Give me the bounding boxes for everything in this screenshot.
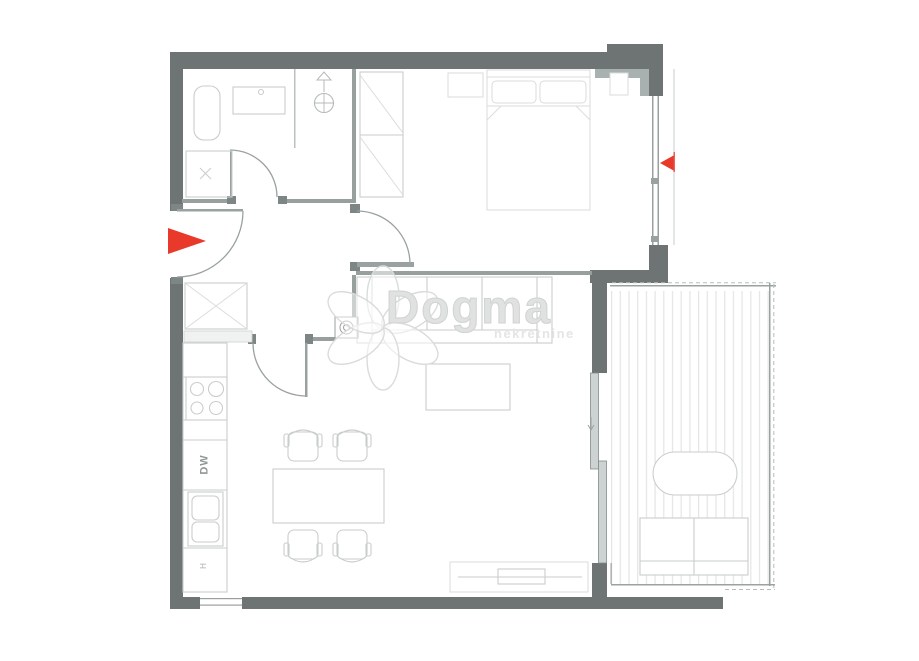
markers (168, 152, 675, 254)
sliding-door-panel-upper (591, 373, 599, 469)
balcony-oval-table (653, 452, 737, 495)
watermark-tagline-text: nekretnine (494, 327, 575, 340)
dining-area (273, 430, 384, 562)
sliding-door (588, 373, 607, 563)
bedroom-window-pane-outer (658, 96, 660, 245)
sliding-door-panel-lower (599, 461, 607, 563)
window-marker-arrow (660, 156, 674, 171)
left-wall-upper (170, 52, 183, 211)
sink-basin-upper (192, 496, 219, 520)
door-jambs (171, 196, 360, 344)
living-right-wall-upper (592, 272, 607, 373)
kitchen-door-swing-arc (253, 343, 306, 396)
washing-machine (186, 151, 232, 197)
chair-back (288, 430, 318, 436)
entrance-arrow (168, 228, 206, 254)
appliance-label: H (200, 556, 208, 576)
bedroom-window-sash-mark-upper (651, 178, 659, 184)
hall-counter-strip (184, 331, 252, 342)
chair-seat (337, 432, 367, 461)
bedroom-window-sash-mark-lower (651, 236, 659, 242)
right-wall-inner-face (640, 78, 649, 96)
bathroom-door-jamb-right (278, 196, 287, 204)
stove-burner (209, 382, 224, 397)
dining-chair-top-left (284, 430, 322, 461)
watermark-brand-text: Dogma (386, 284, 552, 330)
balcony-left-floor-edge (611, 563, 612, 584)
vanity-faucet (259, 90, 264, 95)
kitchen-door-jamb-right (305, 334, 313, 344)
hall-closet-diagonals (185, 283, 247, 329)
stove-burner (191, 402, 203, 414)
shower-partition (294, 69, 296, 148)
right-wall-upper (649, 44, 663, 96)
balcony-rail-bottom (611, 584, 775, 586)
nightstand-left (448, 73, 483, 97)
apartment-floor-plan: DW H Dogma nekretnine (0, 0, 919, 661)
stove-burner (191, 383, 204, 396)
shower-pipe (317, 72, 331, 92)
nightstand-right (610, 73, 628, 95)
dining-table (273, 469, 384, 523)
dining-chair-bottom-left (284, 530, 322, 562)
entrance-jamb-bottom (171, 277, 183, 284)
kitchen-low-window-line-bottom (200, 605, 242, 606)
kitchen-low-window-line-top (200, 598, 242, 599)
stove-burner (210, 402, 223, 415)
left-wall-lower (170, 278, 183, 609)
balcony (610, 283, 776, 590)
bathroom-bottom-wall-right (281, 199, 356, 203)
bottom-wall (170, 597, 723, 609)
bathroom-door-swing-arc (230, 150, 277, 197)
bed-headboard (487, 70, 590, 77)
toilet (194, 86, 220, 140)
washing-machine-x-mark (200, 168, 211, 179)
top-wall (170, 52, 607, 69)
pillow-left (492, 81, 536, 103)
coffee-table (426, 364, 510, 410)
bedroom-window-pane-inner (652, 96, 654, 245)
living-right-wall-lower (592, 563, 607, 609)
bathroom-right-wall (352, 69, 356, 199)
bedroom-door-swing-arc (357, 211, 410, 264)
dining-chair-top-right (333, 430, 371, 461)
balcony-rail-right (769, 283, 771, 586)
bedroom (360, 70, 628, 210)
bathroom-bottom-wall-left (182, 199, 233, 203)
pillow-right (540, 81, 586, 103)
chair-seat (288, 530, 318, 559)
bathroom (186, 69, 334, 197)
chair-seat (288, 432, 318, 461)
balcony-rail-top (610, 285, 776, 287)
dishwasher-label: DW (200, 450, 211, 480)
window-marker-stem (674, 152, 675, 172)
sink-basin-lower (192, 522, 219, 542)
kitchen-door-leaf (305, 343, 308, 397)
kitchen-door-wall (313, 337, 335, 341)
dining-chair-bottom-right (333, 530, 371, 562)
chair-seat (337, 530, 367, 559)
entrance-door-leaf (177, 209, 243, 212)
chair-back (337, 430, 367, 436)
